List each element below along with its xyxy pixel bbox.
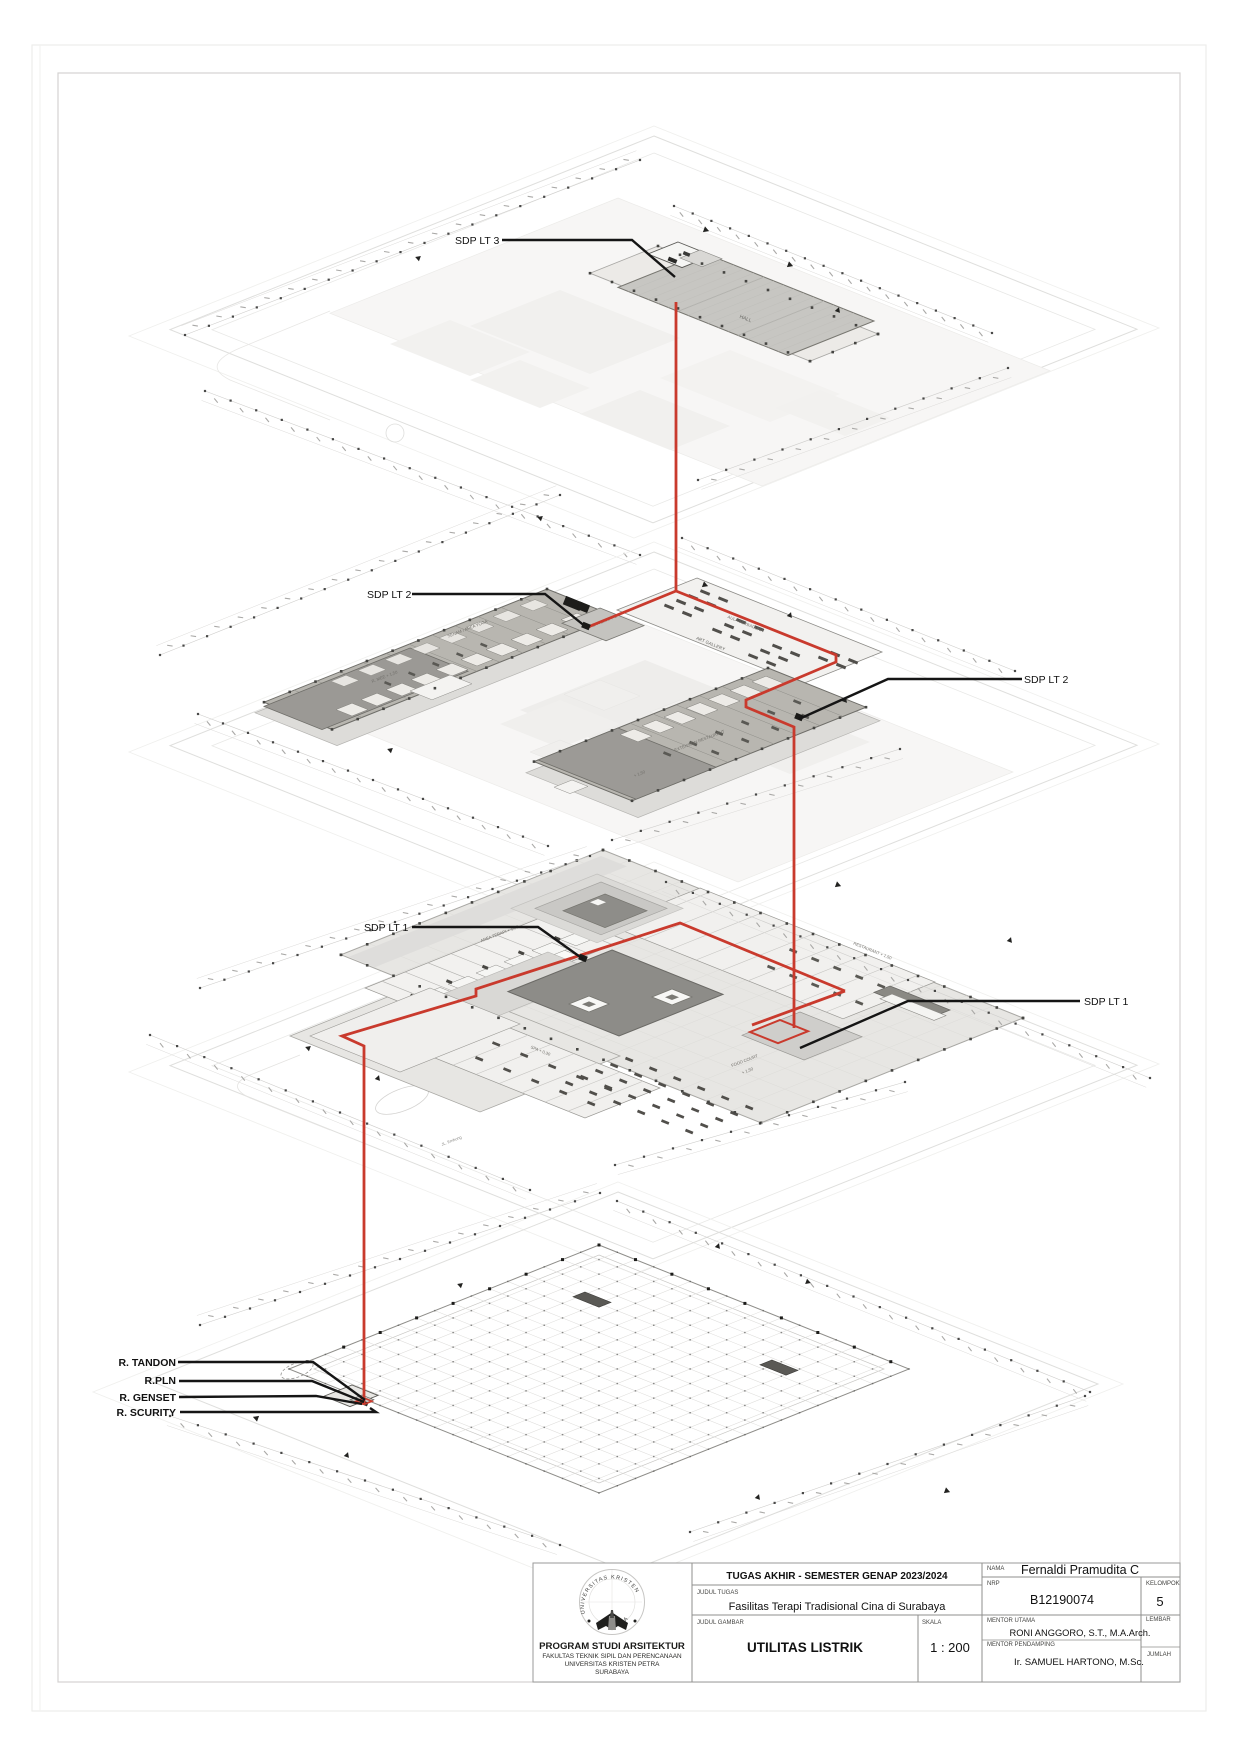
svg-text:NAMA: NAMA <box>987 1566 1004 1572</box>
svg-text:B12190074: B12190074 <box>1030 1593 1094 1607</box>
svg-text:JUDUL GAMBAR: JUDUL GAMBAR <box>697 1620 744 1626</box>
svg-text:JUDUL TUGAS: JUDUL TUGAS <box>697 1590 738 1596</box>
svg-text:RONI ANGGORO, S.T., M.A.Arch.: RONI ANGGORO, S.T., M.A.Arch. <box>1009 1628 1150 1638</box>
svg-text:5: 5 <box>1156 1594 1163 1609</box>
svg-text:FAKULTAS TEKNIK SIPIL DAN PERE: FAKULTAS TEKNIK SIPIL DAN PERENCANAAN <box>542 1653 682 1660</box>
svg-text:R. SCURITY: R. SCURITY <box>116 1407 176 1419</box>
svg-text:KELOMPOK: KELOMPOK <box>1146 1581 1180 1587</box>
svg-text:Fernaldi Pramudita C: Fernaldi Pramudita C <box>1021 1563 1139 1577</box>
svg-text:1 : 200: 1 : 200 <box>930 1640 970 1655</box>
svg-text:PROGRAM STUDI ARSITEKTUR: PROGRAM STUDI ARSITEKTUR <box>539 1641 685 1652</box>
svg-text:SDP LT 3: SDP LT 3 <box>455 235 500 247</box>
svg-text:UNIVERSITAS KRISTEN PETRA: UNIVERSITAS KRISTEN PETRA <box>565 1661 660 1668</box>
svg-text:MENTOR PENDAMPING: MENTOR PENDAMPING <box>987 1642 1055 1648</box>
svg-text:TUGAS AKHIR - SEMESTER GENAP 2: TUGAS AKHIR - SEMESTER GENAP 2023/2024 <box>726 1571 948 1582</box>
svg-text:Fasilitas Terapi Tradisional C: Fasilitas Terapi Tradisional Cina di Sur… <box>729 1601 947 1613</box>
svg-text:NRP: NRP <box>987 1581 1000 1587</box>
svg-text:R.PLN: R.PLN <box>145 1375 177 1387</box>
svg-text:Ir. SAMUEL HARTONO, M.Sc.: Ir. SAMUEL HARTONO, M.Sc. <box>1014 1657 1144 1668</box>
svg-text:R. GENSET: R. GENSET <box>119 1392 176 1404</box>
svg-text:SDP LT 1: SDP LT 1 <box>364 922 409 934</box>
svg-text:R. TANDON: R. TANDON <box>118 1357 176 1369</box>
svg-text:SDP LT 2: SDP LT 2 <box>1024 674 1069 686</box>
svg-text:SDP LT 1: SDP LT 1 <box>1084 996 1129 1008</box>
svg-text:JUMLAH: JUMLAH <box>1147 1652 1171 1658</box>
svg-text:UTILITAS LISTRIK: UTILITAS LISTRIK <box>747 1640 863 1655</box>
svg-text:MENTOR UTAMA: MENTOR UTAMA <box>987 1618 1035 1624</box>
svg-text:SURABAYA: SURABAYA <box>595 1669 630 1676</box>
svg-text:SKALA: SKALA <box>922 1620 941 1626</box>
svg-text:LEMBAR: LEMBAR <box>1146 1617 1171 1623</box>
svg-text:SDP LT 2: SDP LT 2 <box>367 589 412 601</box>
